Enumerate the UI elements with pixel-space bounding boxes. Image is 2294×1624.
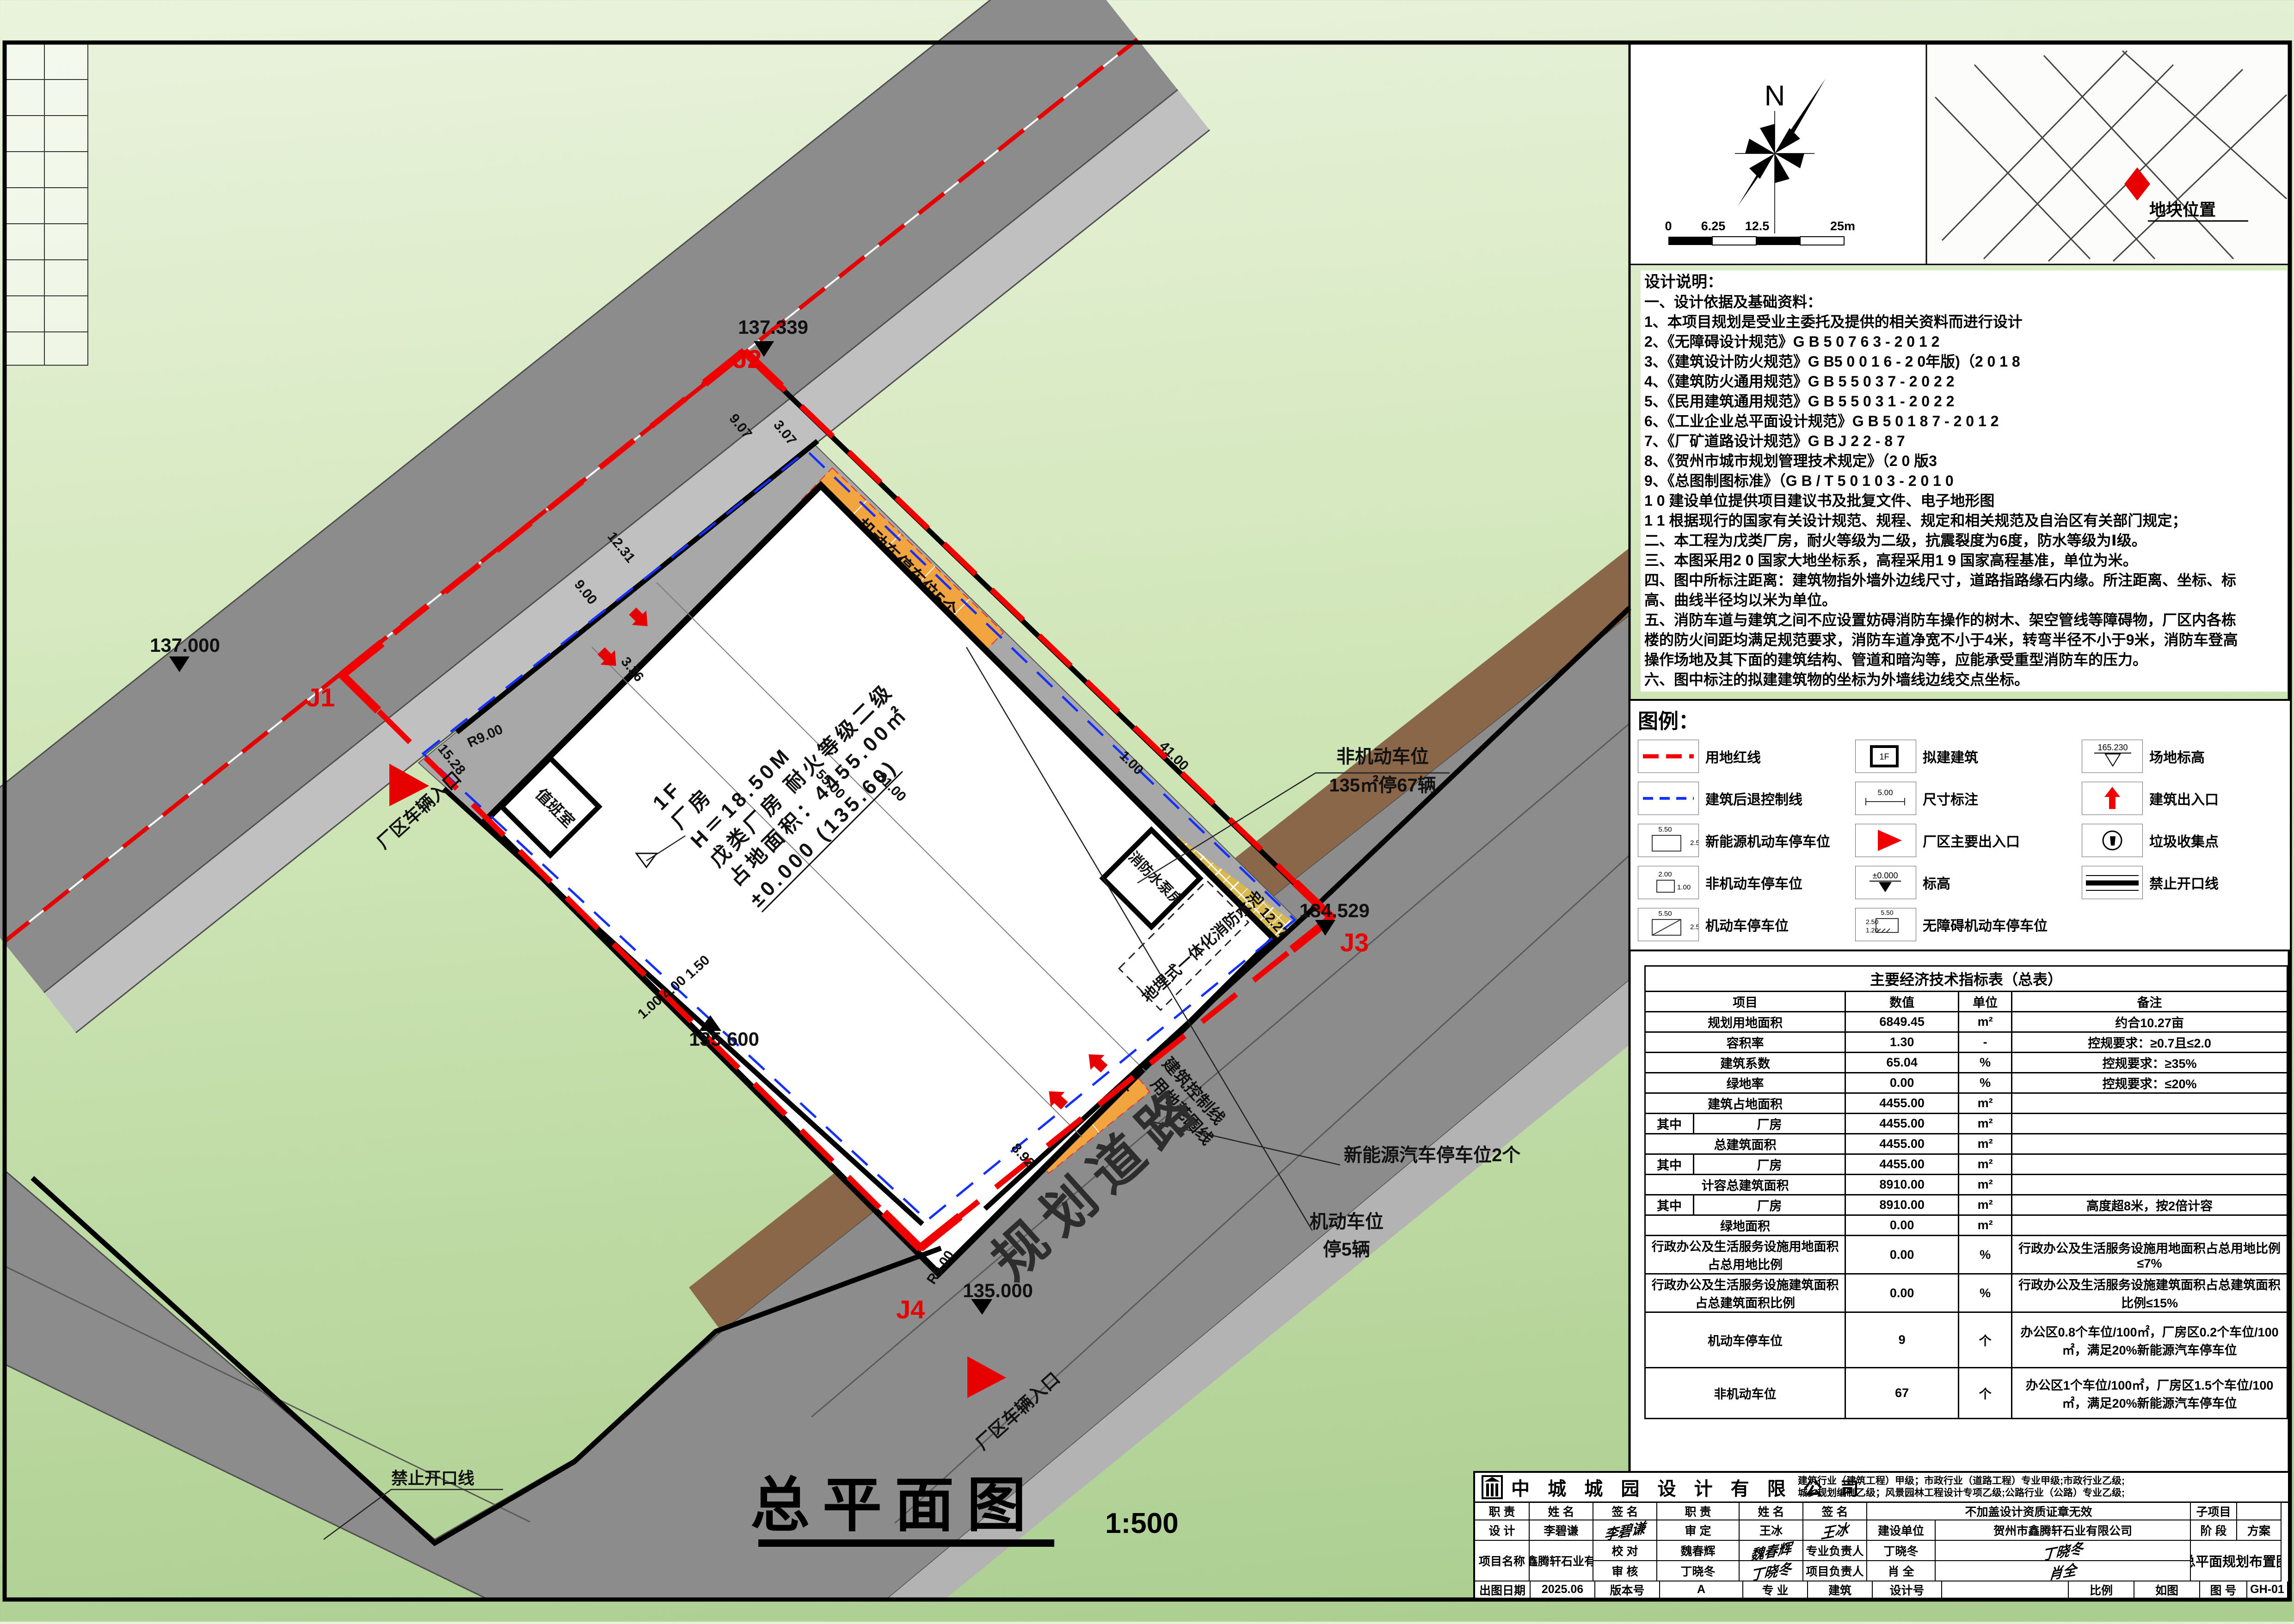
svg-text:5.50: 5.50 [1658,826,1672,833]
plan-title: 总平面图 1:500 [750,1472,1179,1547]
tb-approver-role: 审 定 [1657,1520,1740,1541]
note-line: 9、《总图制图标准》（G B / T 5 0 1 0 3 - 2 0 1 0 [1644,471,2283,491]
ev-stall-icon: 5.50 2.50 [1638,824,1699,857]
point-j1: J1 [306,683,335,712]
legend-item-dim: 5.00 尺寸标注 [1855,777,2082,819]
signature: 丁晓冬 [1750,1561,1792,1581]
legend-item-ev-stall: 5.50 2.50 新能源机动车停车位 [1638,819,1855,861]
note-line: 五、消防车道与建筑之间不应设置妨碍消防车操作的树木、架空管线等障碍物，厂区内各栋 [1644,610,2283,630]
svg-text:1.20: 1.20 [1866,926,1878,934]
legend-item-accessible: 5.50 2.50 1.20 无障碍机动车停车位 [1855,903,2082,945]
table-row: 绿地率0.00%控规要求：≤20% [1645,1073,2288,1093]
svg-text:5.50: 5.50 [1658,910,1672,918]
ev-parking-label: 新能源汽车停车位2个 [1344,1145,1520,1165]
table-row: 建筑占地面积4455.00m² [1645,1093,2288,1114]
note-line: 1 0 建设单位提供项目建议书及批复文件、电子地形图 [1644,491,2283,511]
svg-text:2.50: 2.50 [1690,923,1699,931]
point-j3: J3 [1340,928,1369,957]
table-row: 其中厂房8910.00m²高度超8米，按2倍计容 [1645,1195,2288,1215]
tb-checker-name: 魏春辉 [1657,1541,1740,1561]
table-title: 主要经济技术指标表（总表） [1645,966,2288,992]
tb-version-value: A [1660,1581,1743,1599]
note-line: 六、图中标注的拟建建筑物的坐标为外墙线边线交点坐标。 [1644,670,2283,690]
svg-text:2.00: 2.00 [1658,870,1672,878]
table-row: 非机动车位67个办公区1个车位/100㎡，厂房区1.5个车位/100㎡，满足20… [1645,1368,2288,1419]
economic-indicators-table: 主要经济技术指标表（总表） 项目 数值 单位 备注 规划用地面积6849.45m… [1644,965,2288,1419]
note-line: 楼的防火间距均满足规范要求，消防车道净宽不小于4米，转弯半径不小于9米，消防车登… [1644,630,2283,650]
no-opening-icon [2082,866,2143,899]
plan-scale: 1:500 [1105,1508,1179,1539]
note-line: 8、《贺州市城市规划管理技术规定》（2 0 版3 [1644,451,2283,471]
level-icon: ±0.000 [1855,866,1916,899]
building-entry-icon [2082,782,2143,815]
svg-text:5.50: 5.50 [1881,909,1893,916]
table-row: 建筑系数65.04%控规要求：≥35% [1645,1053,2288,1073]
table-row: 计容总建筑面积8910.00m² [1645,1175,2288,1195]
legend-item-bldg-entry: 建筑出入口 [2082,777,2281,819]
tb-project-value: 贺州市鑫腾轩石业有限公司 [1530,1541,1593,1581]
level-j3: 134.529 [1299,900,1370,921]
svg-text:2.50: 2.50 [1690,839,1699,847]
legend-item-level: ±0.000 标高 [1855,861,2082,903]
table-row: 绿地面积0.00m² [1645,1215,2288,1236]
tb-auditor-role: 审 核 [1593,1561,1657,1581]
tb-project-label: 项目名称 [1475,1541,1530,1581]
legend-item-trash: 垃圾收集点 [2082,819,2281,861]
legend-title: 图例： [1638,705,2282,734]
accessible-stall-icon: 5.50 2.50 1.20 [1855,908,1916,941]
note-line: 3、《建筑设计防火规范》G B5 0 0 1 6 - 2 0年版)（2 0 1 … [1644,352,2283,372]
signature: 李碧谦 [1604,1520,1646,1541]
tb-stamp-note: 不加盖设计资质证章无效 [1867,1503,2191,1520]
tb-pm-role: 项目负责人 [1803,1561,1867,1581]
design-notes-title: 设计说明： [1644,272,2283,292]
tb-h-role: 职 责 [1475,1503,1530,1520]
tb-owner-label: 建设单位 [1867,1520,1936,1541]
legend-item-site-level: 165.230 场地标高 [2082,735,2281,777]
bike-parking-label: 非机动车位 [1336,747,1429,767]
table-row: 规划用地面积6849.45m²约合10.27亩 [1645,1012,2288,1032]
signature: 魏春辉 [1750,1541,1792,1561]
site-location-label: 地块位置 [2149,200,2216,219]
note-line: 四、图中所标注距离：建筑物指外墙外边线尺寸，道路指路缘石内缘。所注距离、坐标、标 [1644,570,2283,590]
tb-prolead-name: 丁晓冬 [1867,1541,1936,1561]
legend-item-main-gate: 厂区主要出入口 [1855,819,2082,861]
tb-sheetno-label: 图 号 [2200,1581,2247,1599]
table-row: 其中厂房4455.00m² [1645,1154,2288,1175]
red-line-icon [1638,740,1699,773]
dimension-icon: 5.00 [1855,782,1916,815]
tb-scale-label: 比例 [2069,1581,2134,1599]
company-logo [1480,1474,1505,1500]
svg-text:6.25: 6.25 [1701,219,1726,233]
motor-parking-count: 停5辆 [1323,1239,1370,1260]
table-row: 机动车停车位9个办公区0.8个车位/100㎡，厂房区0.2个车位/100㎡，满足… [1645,1312,2288,1368]
table-header: 项目 数值 单位 备注 [1645,992,2288,1012]
note-line: 2、《无障碍设计规范》G B 5 0 7 6 3 - 2 0 1 2 [1644,332,2283,352]
legend: 图例： 用地红线 建筑后退控制线 5.50 2.50 新能源机动车停车位 [1630,699,2290,951]
table-row: 总建筑面积4455.00m² [1645,1134,2288,1154]
tb-discipline-label: 专 业 [1743,1581,1808,1599]
note-line: 1、本项目规划是受业主委托及提供的相关资料而进行设计 [1644,312,2283,332]
table-row: 行政办公及生活服务设施建筑面积占总建筑面积比例0.00%行政办公及生活服务设施建… [1645,1274,2288,1312]
note-line: 三、本图采用2 0 国家大地坐标系，高程采用1 9 国家高程基准，单位为米。 [1644,551,2283,570]
svg-text:1F: 1F [1879,752,1889,761]
bike-parking-count: 135㎡停67辆 [1329,775,1436,796]
tb-drawing-name: 总平面规划布置图 [2191,1541,2282,1581]
svg-text:1.00: 1.00 [1677,883,1691,891]
site-level-icon: 165.230 [2082,740,2143,773]
legend-item-red-line: 用地红线 [1638,735,1855,777]
tb-stage-value: 方案 [2237,1520,2282,1541]
tb-scale-value: 如图 [2134,1581,2200,1599]
company-qualifications: 建筑行业（建筑工程）甲级；市政行业（道路工程）专业甲级;市政行业乙级; 城乡规划… [1798,1475,2125,1499]
north-label: N [1765,80,1785,112]
tb-sheetno-value: GH-01 [2247,1581,2288,1599]
note-line: 操作场地及其下面的建筑结构、管道和暗沟等，应能承受重型消防车的压力。 [1644,650,2283,670]
table-row: 其中厂房4455.00m² [1645,1114,2288,1134]
legend-item-motor-stall: 5.50 2.50 机动车停车位 [1638,903,1855,945]
tb-prolead-role: 专业负责人 [1803,1541,1867,1561]
proposed-building-icon: 1F [1855,740,1916,773]
tb-auditor-name: 丁晓冬 [1657,1561,1740,1581]
tb-h-name2: 姓 名 [1740,1503,1803,1520]
signature: 肖全 [2048,1561,2077,1581]
tb-h-role2: 职 责 [1657,1503,1740,1520]
svg-text:±0.000: ±0.000 [1873,871,1898,880]
company-name: 中 城 城 园 设 计 有 限 公 司 [1511,1474,1798,1501]
svg-text:2.50: 2.50 [1866,918,1878,925]
legend-item-no-open: 禁止开口线 [2082,861,2281,903]
svg-text:165.230: 165.230 [2097,743,2128,752]
legend-item-proposed: 1F 拟建建筑 [1855,735,2082,777]
point-j4: J4 [896,1295,925,1324]
tb-designer-name: 李碧谦 [1530,1520,1593,1541]
mini-grid [6,43,88,365]
tb-designno-label: 设计号 [1873,1581,1942,1599]
tb-checker-role: 校 对 [1593,1541,1657,1561]
nonmotor-stall-icon: 2.00 1.00 [1638,866,1699,899]
note-line: 6、《工业企业总平面设计规范》G B 5 0 1 8 7 - 2 0 1 2 [1644,411,2283,431]
tb-designno-value [1942,1581,2069,1599]
svg-text:5.00: 5.00 [1877,788,1893,797]
tb-date-label: 出图日期 [1475,1581,1531,1599]
svg-text:0: 0 [1665,219,1672,233]
motor-parking-label: 机动车位 [1310,1212,1384,1232]
tb-pm-name: 肖 全 [1867,1561,1936,1581]
point-j2: J2 [733,344,762,374]
title-block: 中 城 城 园 设 计 有 限 公 司 建筑行业（建筑工程）甲级；市政行业（道路… [1473,1471,2290,1599]
table-row: 容积率1.30-控规要求：≥0.7且≤2.0 [1645,1032,2288,1053]
tb-h-sign: 签 名 [1593,1503,1657,1520]
no-opening-label: 禁止开口线 [391,1469,474,1488]
tb-h-sign2: 签 名 [1803,1503,1867,1520]
svg-text:25m: 25m [1830,219,1855,233]
note-line: 二、本工程为戊类厂房，耐火等级为二级，抗震裂度为6度，防水等级为Ⅰ级。 [1644,531,2283,551]
legend-item-nonmotor-stall: 2.00 1.00 非机动车停车位 [1638,861,1855,903]
level-j2: 137.339 [738,316,808,338]
plan-title-text: 总平面图 [750,1472,1039,1538]
note-line: 5、《民用建筑通用规范》G B 5 5 0 3 1 - 2 0 2 2 [1644,392,2283,411]
tb-owner-value: 贺州市鑫腾轩石业有限公司 [1936,1520,2191,1541]
tb-version-label: 版本号 [1595,1581,1660,1599]
legend-item-setback: 建筑后退控制线 [1638,777,1855,819]
main-gate-icon [1855,824,1916,857]
trash-point-icon [2082,824,2143,857]
tb-h-name: 姓 名 [1530,1503,1593,1520]
note-line: 4、《建筑防火通用规范》G B 5 5 0 3 7 - 2 0 2 2 [1644,372,2283,392]
setback-line-icon [1638,782,1699,815]
tb-stage-label: 阶 段 [2191,1520,2237,1541]
level-j1: 137.000 [150,634,220,656]
note-line: 1 1 根据现行的国家有关设计规范、规程、规定和相关规范及自治区有关部门规定； [1644,511,2283,531]
tb-date-value: 2025.06 [1531,1581,1595,1599]
tb-subproject: 子项目 [2191,1503,2237,1520]
note-line: 一、设计依据及基础资料： [1644,292,2283,312]
tb-subproject-value [2237,1503,2282,1520]
signature: 丁晓冬 [2042,1541,2084,1561]
design-notes: 设计说明： 一、设计依据及基础资料： 1、本项目规划是受业主委托及提供的相关资料… [1641,270,2287,692]
tb-designer-role: 设 计 [1475,1520,1530,1541]
signature: 王冰 [1820,1520,1849,1541]
tb-discipline-value: 建筑 [1808,1581,1873,1599]
table-row: 行政办公及生活服务设施用地面积占总用地比例0.00%行政办公及生活服务设施用地面… [1645,1236,2288,1274]
note-line: 高、曲线半径均以米为单位。 [1644,590,2283,610]
note-line: 7、《厂矿道路设计规范》G B J 2 2 - 8 7 [1644,431,2283,451]
level-west: 135.600 [689,1028,759,1050]
svg-text:12.5: 12.5 [1745,219,1770,233]
motor-stall-icon: 5.50 2.50 [1638,908,1699,941]
drawing-sheet: 机动车停车位5个 机动车停车位2个 值班室 消防水泵房 1F 厂房 H＝18.5… [0,0,2294,1622]
tb-approver-name: 王冰 [1740,1520,1803,1541]
